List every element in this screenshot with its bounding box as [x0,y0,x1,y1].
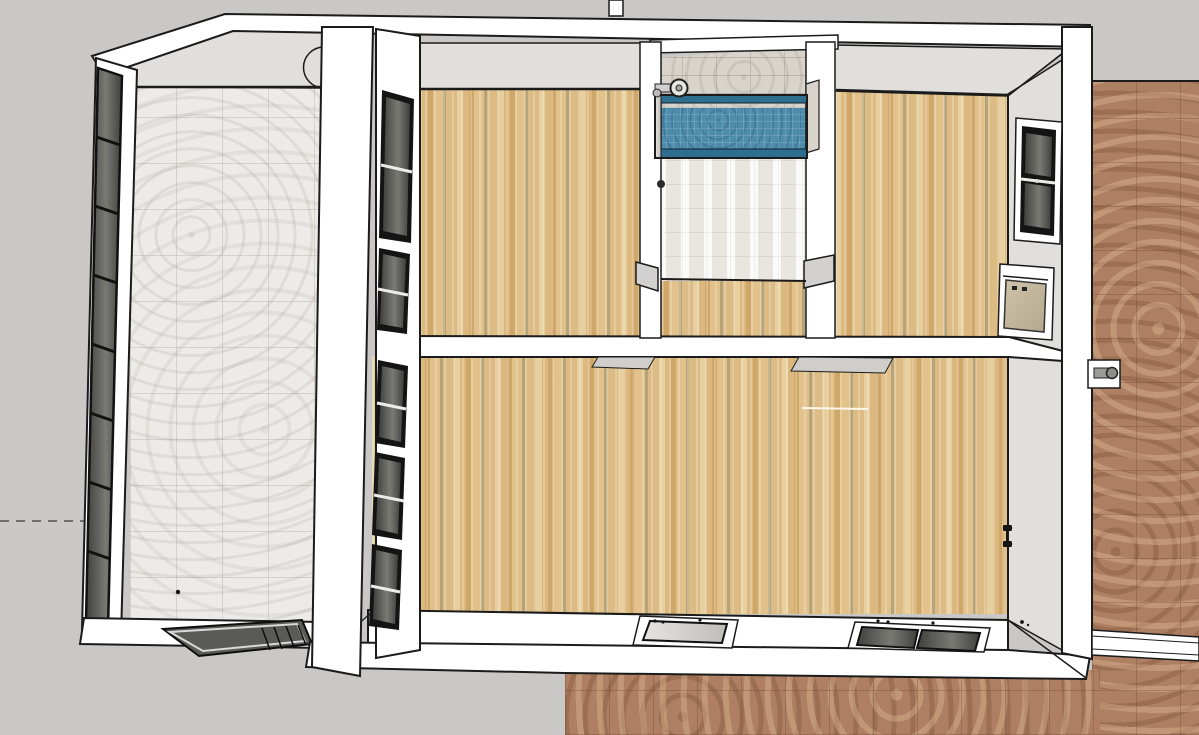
door-threshold-left [592,357,655,369]
door-threshold-right [791,357,893,373]
floor-scratch-line [802,408,868,409]
central-wall-column [312,27,373,676]
bathroom-door-knob [657,180,665,188]
east-exterior-wall [1062,27,1092,659]
3d-viewport[interactable] [0,0,1199,735]
middle-dividing-wall [376,336,1063,361]
fence-strip-right [1092,630,1199,661]
fence-strip-top [609,0,623,16]
bottom-window-light [633,616,738,648]
bathroom-tile-wood-boundary [661,279,806,281]
hose-bib [1088,360,1120,388]
east-window-dark [1014,118,1062,244]
atrium-floor-dot [176,590,180,594]
model-overlay [0,0,1199,735]
east-window-beige [998,264,1054,340]
bedroom-left-north-wall-face [383,43,648,89]
